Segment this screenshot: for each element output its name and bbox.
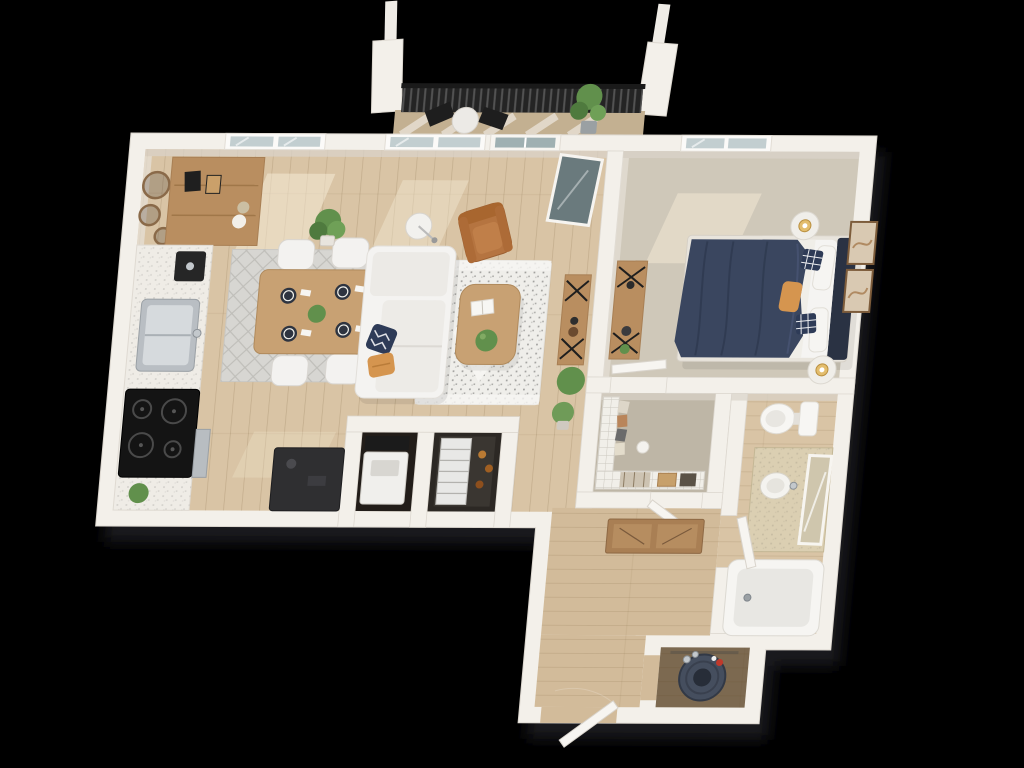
wall-laundry-top [346,416,519,433]
sectional-sofa [354,246,457,398]
bathtub [722,560,825,636]
balcony-door [490,134,561,150]
kitchen-sink [136,299,204,371]
book [471,299,494,316]
plant-pot [320,236,335,246]
tub-drain [744,594,752,601]
kitchen-wall-shelf [165,157,265,245]
balcony-pier-left [371,39,403,113]
stacked-washer-dryer [360,452,409,504]
pantry-closet [434,436,496,506]
wall-closet-bottom-right [701,492,722,508]
hall-runner-rug [605,519,704,553]
picture-frame-wood [206,175,222,193]
washer-dryer-top [365,436,410,450]
floorplan-svg [0,0,1024,768]
bedroom-window [681,135,772,151]
railing-top-rail [401,83,645,89]
heater-pipe-2 [692,651,699,657]
basket [657,473,676,486]
heater-pipe-1 [683,656,691,663]
coffee-table [454,284,526,370]
living-window-1 [225,133,326,149]
floorplan-stage [0,0,1024,768]
planter-pot [580,121,597,134]
picture-frame-dark [185,171,201,192]
wall-closet-bottom-left [575,492,650,508]
vanity-with-sink [746,448,833,552]
coffee-maker [174,251,207,281]
wall-bedroom-bottom-left [586,377,611,393]
queen-bed [673,235,858,362]
storage-bin [679,473,696,486]
hamper [636,441,649,453]
laundry-closet [360,436,410,504]
dark-bar-cabinet [269,448,345,511]
living-window-2 [385,134,486,150]
faucet [790,482,798,489]
